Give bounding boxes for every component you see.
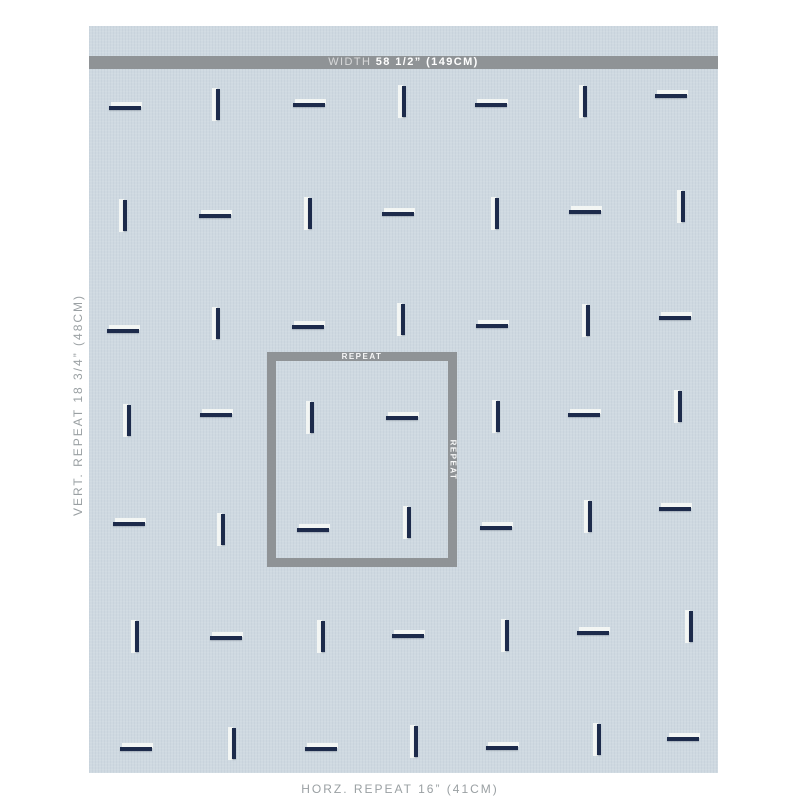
stitch-navy (382, 212, 414, 216)
fabric-mark-horizontal (655, 90, 689, 100)
stitch-navy (583, 86, 587, 117)
fabric-mark-horizontal (109, 102, 143, 112)
vertical-repeat-label: VERT. REPEAT 18 3/4” (48CM) (71, 294, 85, 516)
fabric-swatch: WIDTH 58 1/2” (149CM) REPEAT REPEAT (89, 26, 718, 773)
width-label-value: 58 1/2” (149CM) (376, 56, 479, 68)
fabric-mark-vertical (212, 307, 222, 341)
fabric-mark-vertical (123, 404, 133, 438)
fabric-mark-horizontal (199, 210, 233, 220)
fabric-mark-vertical (398, 85, 408, 119)
fabric-mark-vertical (674, 390, 684, 424)
stitch-navy (496, 401, 500, 432)
stitch-navy (588, 501, 592, 532)
stitch-navy (127, 405, 131, 436)
fabric-mark-vertical (217, 513, 227, 547)
fabric-mark-horizontal (475, 99, 509, 109)
stitch-navy (120, 747, 152, 751)
fabric-mark-horizontal (120, 743, 154, 753)
fabric-mark-horizontal (476, 320, 510, 330)
stitch-navy (401, 304, 405, 335)
fabric-mark-vertical (579, 85, 589, 119)
fabric-mark-horizontal (667, 733, 701, 743)
stitch-navy (216, 308, 220, 339)
stitch-navy (135, 621, 139, 652)
fabric-mark-horizontal (305, 743, 339, 753)
stitch-navy (392, 634, 424, 638)
stitch-navy (586, 305, 590, 336)
stitch-navy (293, 103, 325, 107)
fabric-mark-vertical (584, 500, 594, 534)
stitch-navy (505, 620, 509, 651)
stitch-navy (109, 106, 141, 110)
stitch-navy (292, 325, 324, 329)
fabric-mark-vertical (304, 197, 314, 231)
fabric-mark-vertical (410, 725, 420, 759)
stitch-navy (568, 413, 600, 417)
fabric-mark-horizontal (659, 312, 693, 322)
fabric-swatch-stage: WIDTH 58 1/2” (149CM) REPEAT REPEAT VERT… (0, 0, 800, 800)
stitch-navy (681, 191, 685, 222)
repeat-outline-box: REPEAT REPEAT (267, 352, 457, 567)
fabric-mark-horizontal (382, 208, 416, 218)
fabric-mark-vertical (491, 197, 501, 231)
stitch-navy (689, 611, 693, 642)
fabric-mark-vertical (685, 610, 695, 644)
fabric-mark-vertical (582, 304, 592, 338)
stitch-navy (486, 746, 518, 750)
stitch-navy (199, 214, 231, 218)
stitch-navy (308, 198, 312, 229)
fabric-mark-horizontal (293, 99, 327, 109)
stitch-navy (495, 198, 499, 229)
fabric-mark-vertical (501, 619, 511, 653)
fabric-mark-vertical (228, 727, 238, 761)
stitch-navy (577, 631, 609, 635)
fabric-mark-vertical (119, 199, 129, 233)
stitch-navy (480, 526, 512, 530)
fabric-mark-horizontal (107, 325, 141, 335)
stitch-navy (221, 514, 225, 545)
stitch-navy (232, 728, 236, 759)
stitch-navy (414, 726, 418, 757)
fabric-mark-vertical (677, 190, 687, 224)
fabric-mark-horizontal (200, 409, 234, 419)
repeat-label-side: REPEAT (448, 439, 457, 480)
stitch-navy (216, 89, 220, 120)
stitch-navy (667, 737, 699, 741)
stitch-navy (475, 103, 507, 107)
stitch-navy (597, 724, 601, 755)
stitch-navy (321, 621, 325, 652)
stitch-navy (659, 507, 691, 511)
fabric-mark-horizontal (480, 522, 514, 532)
stitch-navy (107, 329, 139, 333)
fabric-mark-horizontal (569, 206, 603, 216)
fabric-mark-vertical (593, 723, 603, 757)
horizontal-repeat-label: HORZ. REPEAT 16” (41CM) (301, 782, 499, 796)
stitch-navy (113, 522, 145, 526)
stitch-navy (210, 636, 242, 640)
fabric-mark-horizontal (577, 627, 611, 637)
fabric-mark-horizontal (210, 632, 244, 642)
stitch-navy (655, 94, 687, 98)
fabric-mark-vertical (317, 620, 327, 654)
fabric-mark-vertical (492, 400, 502, 434)
fabric-mark-horizontal (292, 321, 326, 331)
stitch-navy (305, 747, 337, 751)
fabric-mark-horizontal (113, 518, 147, 528)
fabric-mark-horizontal (568, 409, 602, 419)
fabric-mark-horizontal (486, 742, 520, 752)
fabric-mark-horizontal (659, 503, 693, 513)
repeat-label-top: REPEAT (276, 352, 448, 361)
fabric-mark-horizontal (392, 630, 426, 640)
fabric-mark-vertical (397, 303, 407, 337)
stitch-navy (123, 200, 127, 231)
stitch-navy (200, 413, 232, 417)
stitch-navy (476, 324, 508, 328)
stitch-navy (569, 210, 601, 214)
width-label-prefix: WIDTH (328, 56, 376, 68)
width-measure-bar: WIDTH 58 1/2” (149CM) (89, 56, 718, 69)
stitch-navy (678, 391, 682, 422)
stitch-navy (659, 316, 691, 320)
stitch-navy (402, 86, 406, 117)
fabric-mark-vertical (212, 88, 222, 122)
fabric-mark-vertical (131, 620, 141, 654)
